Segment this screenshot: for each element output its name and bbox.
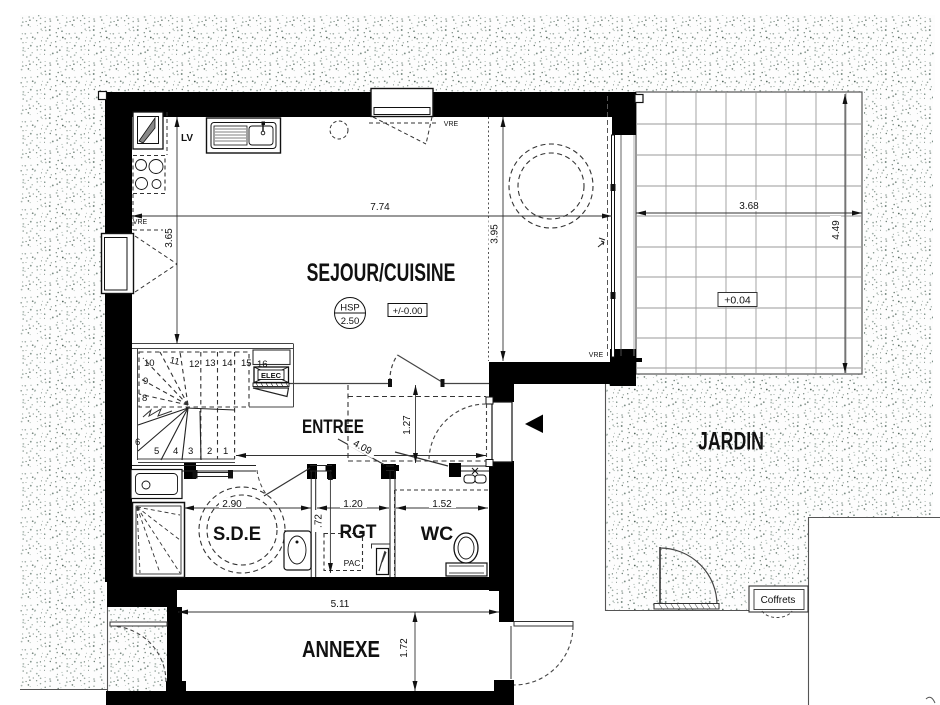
svg-text:2: 2 (207, 446, 212, 457)
svg-text:10: 10 (144, 358, 155, 369)
svg-text:1.20: 1.20 (343, 499, 363, 510)
svg-text:13: 13 (205, 358, 216, 369)
svg-text:LV: LV (181, 133, 193, 144)
svg-text:PAC: PAC (344, 558, 361, 568)
svg-text:4: 4 (173, 446, 178, 457)
svg-text:WC: WC (421, 523, 454, 545)
svg-text:VRE: VRE (133, 219, 148, 226)
svg-text:5: 5 (154, 446, 159, 457)
svg-text:+/-0.00: +/-0.00 (393, 306, 423, 317)
svg-text:ENTREE: ENTREE (302, 415, 364, 437)
svg-text:VRE: VRE (589, 352, 604, 359)
svg-text:JARDIN: JARDIN (698, 426, 764, 455)
svg-text:3.65: 3.65 (164, 228, 175, 248)
svg-text:.72: .72 (314, 514, 325, 528)
svg-text:5.11: 5.11 (331, 599, 350, 610)
svg-text:2.50: 2.50 (341, 316, 360, 327)
svg-text:3.95: 3.95 (490, 224, 501, 244)
svg-text:7.74: 7.74 (370, 202, 390, 213)
svg-text:VRE: VRE (444, 121, 459, 128)
svg-text:SEJOUR/CUISINE: SEJOUR/CUISINE (307, 258, 456, 287)
svg-text:8: 8 (142, 393, 147, 404)
svg-text:Coffrets: Coffrets (761, 595, 796, 606)
svg-text:1.52: 1.52 (432, 499, 452, 510)
svg-text:1.72: 1.72 (399, 638, 410, 658)
svg-text:4.49: 4.49 (831, 220, 842, 240)
svg-text:RGT: RGT (340, 520, 378, 542)
svg-text:HSP: HSP (340, 303, 360, 314)
svg-text:2.90: 2.90 (222, 499, 242, 510)
svg-text:16: 16 (257, 359, 268, 370)
svg-text:S.D.E: S.D.E (213, 524, 261, 546)
svg-text:1: 1 (223, 446, 228, 457)
svg-text:9: 9 (143, 376, 148, 387)
svg-text:ANNEXE: ANNEXE (302, 637, 380, 662)
svg-text:6: 6 (135, 437, 140, 448)
svg-text:3.68: 3.68 (739, 201, 759, 212)
svg-text:12: 12 (189, 359, 200, 370)
svg-text:14: 14 (222, 358, 233, 369)
svg-text:ELEC: ELEC (261, 371, 282, 380)
svg-text:15: 15 (241, 358, 252, 369)
svg-text:3: 3 (188, 446, 193, 457)
svg-text:+0.04: +0.04 (724, 295, 751, 307)
svg-text:1.27: 1.27 (402, 415, 413, 435)
